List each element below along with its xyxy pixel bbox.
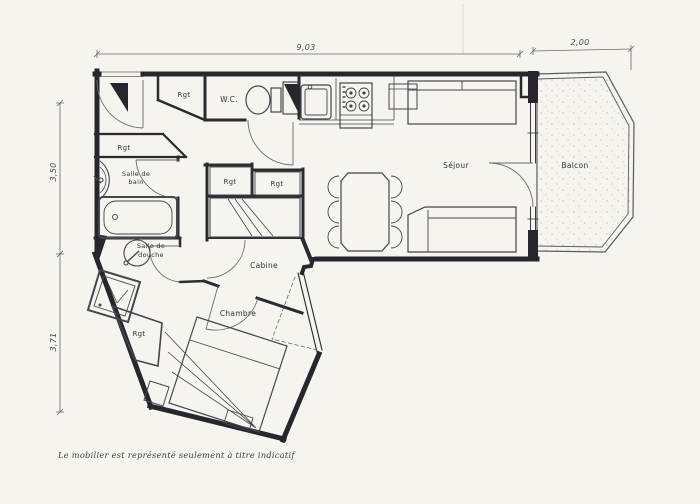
storage-label-cabine-left: Rgt [224, 178, 237, 186]
dim-width-main: 9,03 [296, 43, 315, 52]
kitchen-fixtures [299, 76, 417, 128]
wc-fixtures [246, 86, 281, 114]
scanned-floor-plan-page: 9,03 2,00 3,50 3,71 [0, 0, 700, 504]
dim-height-upper: 3,50 [49, 162, 58, 181]
dining-table [341, 173, 389, 251]
kitchen-cupboard [389, 84, 417, 109]
room-label-bathroom-line2: bain [128, 178, 143, 186]
room-label-balcon: Balcon [561, 161, 588, 170]
toilet-tank [271, 88, 281, 112]
sofa-bottom [408, 207, 516, 252]
room-label-chambre: Chambre [220, 309, 256, 318]
storage-label-hall: Rgt [118, 144, 131, 152]
bathtub [99, 197, 177, 238]
room-label-sejour: Séjour [443, 161, 469, 170]
cabine-door-arc [207, 240, 245, 278]
room-label-wc: W.C. [220, 95, 238, 104]
room-label-shower-line1: Salle de [137, 242, 165, 250]
door-swings [97, 80, 533, 330]
storage-label-bedroom: Rgt [133, 330, 146, 338]
dim-width-balcony: 2,00 [570, 38, 589, 47]
dining-chairs-left [328, 176, 339, 248]
wc-door-arc [248, 120, 293, 165]
room-label-cabine: Cabine [250, 261, 278, 270]
room-label-shower-line2: douche [138, 251, 164, 259]
toilet-bowl [246, 86, 270, 114]
dining-chairs-right [391, 176, 402, 248]
corner-washbasin [100, 161, 109, 199]
balcony-door-arc [489, 163, 533, 207]
room-label-bathroom-line1: Salle de [122, 170, 150, 178]
floor-plan-drawing: 9,03 2,00 3,50 3,71 [0, 0, 700, 504]
storage-label-cabine-right: Rgt [271, 180, 284, 188]
bunk-bed [210, 198, 300, 237]
storage-label-entry: Rgt [178, 91, 191, 99]
plan-note: Le mobilier est représenté seulement à t… [57, 450, 296, 460]
dim-height-lower: 3,71 [49, 332, 58, 351]
